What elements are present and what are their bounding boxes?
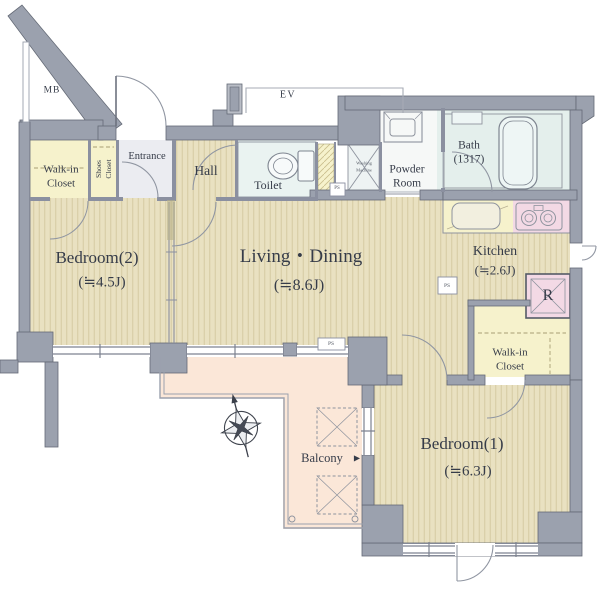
ev-label: EV — [280, 89, 296, 101]
kitchen-sink-icon — [452, 203, 500, 229]
wic-left-label-line2: Closet — [47, 178, 75, 191]
hall-label: Hall — [194, 163, 217, 179]
powder-room-label-line2: Room — [393, 177, 421, 190]
wic-right-label-line1: Walk-in — [492, 347, 527, 360]
floor-plan-svg — [0, 0, 600, 600]
entrance-main-door-arc — [116, 76, 166, 126]
bath-label: Bath — [458, 139, 480, 152]
kitchen-service-door — [582, 246, 596, 260]
powder-room-label-line1: Powder — [389, 163, 424, 176]
kitchen-label: Kitchen — [473, 244, 517, 260]
bedroom2-floor — [30, 197, 168, 347]
bedroom2-area: (≒4.5J) — [78, 274, 125, 291]
bedroom1-label: Bedroom(1) — [420, 434, 503, 454]
kitchen-area: (≒2.6J) — [475, 264, 516, 279]
bathtub-icon — [499, 117, 537, 189]
refrigerator-label: R — [543, 287, 554, 305]
toilet-icon — [268, 151, 314, 181]
bedroom2-label: Bedroom(2) — [55, 248, 138, 268]
kitchen-counter — [443, 200, 570, 233]
ps-label-wall: PS — [328, 341, 334, 347]
mb-label: MB — [44, 86, 61, 97]
balcony-arrow-icon: ▶ — [354, 453, 360, 462]
balcony-label: Balcony — [301, 451, 343, 465]
ps-label-kitchen: PS — [444, 283, 450, 289]
washing-machine-label-line2: Machine — [356, 167, 372, 172]
bath-size-label: (1317) — [454, 153, 485, 166]
living-dining-area: (≒8.6J) — [274, 277, 324, 295]
ps-label-toilet: PS — [334, 186, 340, 192]
wic-left-label-line1: Walk-in — [43, 164, 78, 177]
bedroom1-area: (≒6.3J) — [444, 463, 491, 480]
living-dining-label: Living・Dining — [240, 246, 362, 268]
compass-rose — [213, 389, 268, 462]
floor-plan: MB EV Entrance Shoes Closet Walk-in Clos… — [0, 0, 600, 600]
toilet-label: Toilet — [254, 179, 282, 193]
washing-machine-label-line1: Washing — [356, 160, 372, 165]
shoes-closet-label: Shoes Closet — [94, 159, 114, 178]
bath-counter — [452, 112, 482, 124]
entrance-floor — [118, 140, 176, 198]
entrance-label: Entrance — [128, 151, 165, 163]
wic-right-label-line2: Closet — [496, 361, 524, 374]
mb-side-wall — [23, 42, 29, 122]
